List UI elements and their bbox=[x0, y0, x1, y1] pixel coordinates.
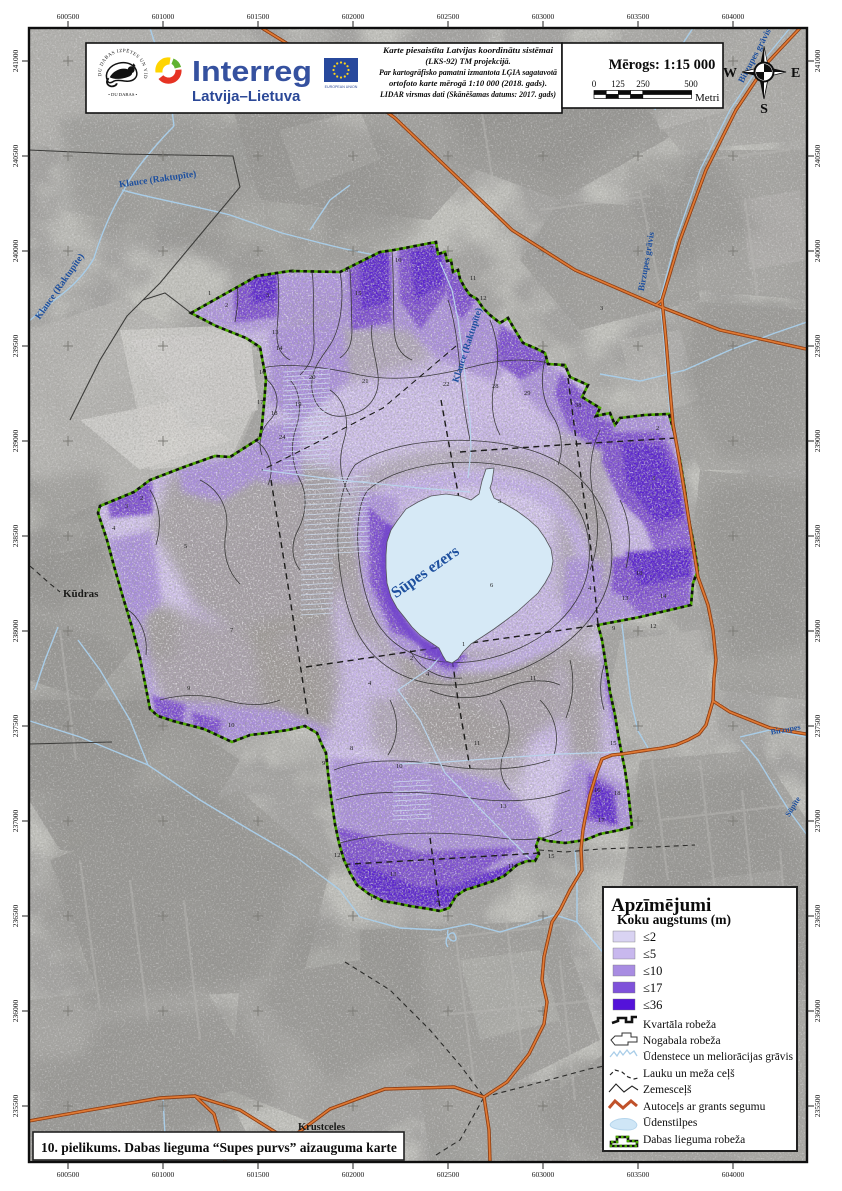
svg-text:Ūdenstece un meliorācijas grāv: Ūdenstece un meliorācijas grāvis bbox=[643, 1050, 794, 1063]
svg-text:604000: 604000 bbox=[722, 1170, 745, 1179]
svg-text:EUROPEAN UNION: EUROPEAN UNION bbox=[325, 85, 358, 89]
svg-text:3: 3 bbox=[600, 305, 603, 312]
svg-text:Dabas lieguma robeža: Dabas lieguma robeža bbox=[643, 1134, 745, 1146]
svg-text:235500: 235500 bbox=[813, 1095, 822, 1118]
svg-text:14: 14 bbox=[660, 593, 667, 600]
svg-text:≤5: ≤5 bbox=[643, 947, 656, 961]
svg-text:Latvija–Lietuva: Latvija–Lietuva bbox=[192, 88, 301, 105]
svg-text:21: 21 bbox=[362, 378, 369, 385]
svg-text:236000: 236000 bbox=[11, 1000, 20, 1023]
svg-text:602500: 602500 bbox=[437, 12, 460, 21]
svg-text:(LKS-92) TM projekcijā.: (LKS-92) TM projekcijā. bbox=[425, 57, 510, 66]
svg-text:603000: 603000 bbox=[532, 12, 555, 21]
svg-text:239500: 239500 bbox=[813, 335, 822, 358]
svg-text:9: 9 bbox=[187, 685, 190, 692]
svg-text:3: 3 bbox=[652, 475, 655, 482]
svg-text:2: 2 bbox=[225, 302, 228, 309]
svg-text:12: 12 bbox=[480, 295, 487, 302]
svg-text:Zemesceļš: Zemesceļš bbox=[643, 1084, 692, 1096]
svg-text:13: 13 bbox=[500, 803, 507, 810]
svg-text:240000: 240000 bbox=[813, 240, 822, 263]
svg-text:Nogabala robeža: Nogabala robeža bbox=[643, 1035, 721, 1047]
svg-text:3: 3 bbox=[498, 498, 501, 505]
svg-text:20: 20 bbox=[309, 374, 316, 381]
svg-text:28: 28 bbox=[492, 383, 499, 390]
svg-text:ortofoto karte mērogā 1:10 000: ortofoto karte mērogā 1:10 000 (2018. ga… bbox=[389, 79, 547, 88]
svg-text:125: 125 bbox=[611, 79, 625, 89]
svg-text:11: 11 bbox=[508, 863, 514, 870]
svg-text:240500: 240500 bbox=[11, 145, 20, 168]
svg-text:602000: 602000 bbox=[342, 12, 365, 21]
svg-text:236000: 236000 bbox=[813, 1000, 822, 1023]
svg-text:239000: 239000 bbox=[11, 430, 20, 453]
svg-text:13: 13 bbox=[272, 329, 279, 336]
svg-text:236500: 236500 bbox=[11, 905, 20, 928]
svg-text:9: 9 bbox=[612, 625, 615, 632]
svg-text:W: W bbox=[723, 66, 737, 81]
svg-text:17: 17 bbox=[257, 399, 264, 406]
svg-text:Par kartogrāfisko pamatni izma: Par kartogrāfisko pamatni izmantota LĢIA… bbox=[379, 68, 557, 77]
svg-text:≤2: ≤2 bbox=[643, 930, 656, 944]
svg-text:38: 38 bbox=[575, 402, 582, 409]
svg-text:1: 1 bbox=[208, 290, 211, 297]
svg-text:604000: 604000 bbox=[722, 12, 745, 21]
svg-text:≤10: ≤10 bbox=[643, 964, 662, 978]
svg-text:Mērogs: 1:15 000: Mērogs: 1:15 000 bbox=[609, 57, 716, 73]
svg-text:601000: 601000 bbox=[152, 12, 175, 21]
svg-text:12: 12 bbox=[334, 852, 341, 859]
svg-text:603000: 603000 bbox=[532, 1170, 555, 1179]
svg-text:9: 9 bbox=[322, 760, 325, 767]
svg-text:237000: 237000 bbox=[11, 810, 20, 833]
svg-text:22: 22 bbox=[443, 381, 450, 388]
svg-text:S: S bbox=[760, 102, 768, 117]
svg-text:237000: 237000 bbox=[813, 810, 822, 833]
svg-text:12: 12 bbox=[650, 623, 657, 630]
svg-text:16: 16 bbox=[594, 787, 601, 794]
svg-text:16: 16 bbox=[259, 369, 266, 376]
svg-text:17: 17 bbox=[598, 817, 605, 824]
svg-text:10: 10 bbox=[396, 763, 403, 770]
svg-text:601500: 601500 bbox=[247, 1170, 270, 1179]
svg-text:13: 13 bbox=[622, 595, 629, 602]
svg-text:250: 250 bbox=[636, 79, 650, 89]
svg-text:3: 3 bbox=[266, 292, 269, 299]
svg-text:239500: 239500 bbox=[11, 335, 20, 358]
svg-text:241000: 241000 bbox=[813, 50, 822, 73]
svg-text:11: 11 bbox=[474, 740, 480, 747]
svg-text:238000: 238000 bbox=[11, 620, 20, 643]
svg-text:1: 1 bbox=[370, 895, 373, 902]
svg-text:13: 13 bbox=[390, 871, 397, 878]
svg-text:24: 24 bbox=[279, 434, 286, 441]
svg-text:602000: 602000 bbox=[342, 1170, 365, 1179]
svg-text:3: 3 bbox=[125, 503, 128, 510]
svg-text:8: 8 bbox=[345, 267, 348, 274]
svg-text:241000: 241000 bbox=[11, 50, 20, 73]
svg-text:Kūdras: Kūdras bbox=[63, 588, 99, 600]
svg-text:15: 15 bbox=[548, 853, 555, 860]
svg-text:237500: 237500 bbox=[11, 715, 20, 738]
svg-text:Koku augstums (m): Koku augstums (m) bbox=[617, 912, 731, 927]
svg-text:15: 15 bbox=[355, 290, 362, 297]
svg-text:18: 18 bbox=[614, 790, 621, 797]
svg-text:5: 5 bbox=[184, 543, 187, 550]
svg-text:29: 29 bbox=[524, 390, 531, 397]
svg-text:8: 8 bbox=[350, 745, 353, 752]
svg-text:10: 10 bbox=[636, 570, 643, 577]
svg-text:2: 2 bbox=[656, 425, 659, 432]
svg-text:238500: 238500 bbox=[11, 525, 20, 548]
svg-text:Ūdenstilpes: Ūdenstilpes bbox=[643, 1116, 698, 1129]
svg-text:1: 1 bbox=[462, 641, 465, 648]
svg-text:238500: 238500 bbox=[813, 525, 822, 548]
svg-text:601500: 601500 bbox=[247, 12, 270, 21]
svg-text:10: 10 bbox=[228, 722, 235, 729]
svg-text:10: 10 bbox=[395, 257, 402, 264]
svg-text:Kvartāla robeža: Kvartāla robeža bbox=[643, 1019, 716, 1031]
svg-text:603500: 603500 bbox=[627, 1170, 650, 1179]
svg-text:602500: 602500 bbox=[437, 1170, 460, 1179]
svg-text:E: E bbox=[791, 66, 800, 81]
svg-text:603500: 603500 bbox=[627, 12, 650, 21]
svg-text:2: 2 bbox=[140, 495, 143, 502]
svg-text:19: 19 bbox=[295, 401, 302, 408]
svg-text:LIDAR virsmas dati (Skānēšamas: LIDAR virsmas dati (Skānēšamas datums: 2… bbox=[379, 90, 556, 99]
svg-text:15: 15 bbox=[610, 740, 617, 747]
svg-text:236500: 236500 bbox=[813, 905, 822, 928]
svg-text:11: 11 bbox=[530, 675, 536, 682]
svg-text:240500: 240500 bbox=[813, 145, 822, 168]
svg-text:600500: 600500 bbox=[57, 1170, 80, 1179]
svg-text:2: 2 bbox=[410, 655, 413, 662]
svg-text:Karte piesaistīta Latvijas koo: Karte piesaistīta Latvijas koordinātu si… bbox=[382, 46, 554, 55]
svg-text:601000: 601000 bbox=[152, 1170, 175, 1179]
svg-text:18: 18 bbox=[271, 410, 278, 417]
svg-text:14: 14 bbox=[276, 345, 283, 352]
svg-text:10. pielikums. Dabas lieguma “: 10. pielikums. Dabas lieguma “Supes purv… bbox=[41, 1140, 397, 1155]
svg-text:≤36: ≤36 bbox=[643, 998, 662, 1012]
svg-text:235500: 235500 bbox=[11, 1095, 20, 1118]
svg-text:240000: 240000 bbox=[11, 240, 20, 263]
svg-text:Metri: Metri bbox=[695, 92, 719, 104]
svg-text:239000: 239000 bbox=[813, 430, 822, 453]
svg-text:500: 500 bbox=[684, 79, 698, 89]
svg-text:238000: 238000 bbox=[813, 620, 822, 643]
svg-text:237500: 237500 bbox=[813, 715, 822, 738]
svg-text:Lauku un meža ceļš: Lauku un meža ceļš bbox=[643, 1068, 735, 1080]
svg-text:≤17: ≤17 bbox=[643, 981, 662, 995]
svg-text:2: 2 bbox=[436, 897, 439, 904]
svg-text:Interreg: Interreg bbox=[192, 56, 312, 88]
svg-text:• DU DABAS •: • DU DABAS • bbox=[108, 92, 137, 97]
svg-text:600500: 600500 bbox=[57, 12, 80, 21]
svg-text:Autoceļs ar grants segumu: Autoceļs ar grants segumu bbox=[643, 1101, 766, 1113]
svg-text:11: 11 bbox=[470, 275, 476, 282]
svg-text:0: 0 bbox=[592, 79, 597, 89]
